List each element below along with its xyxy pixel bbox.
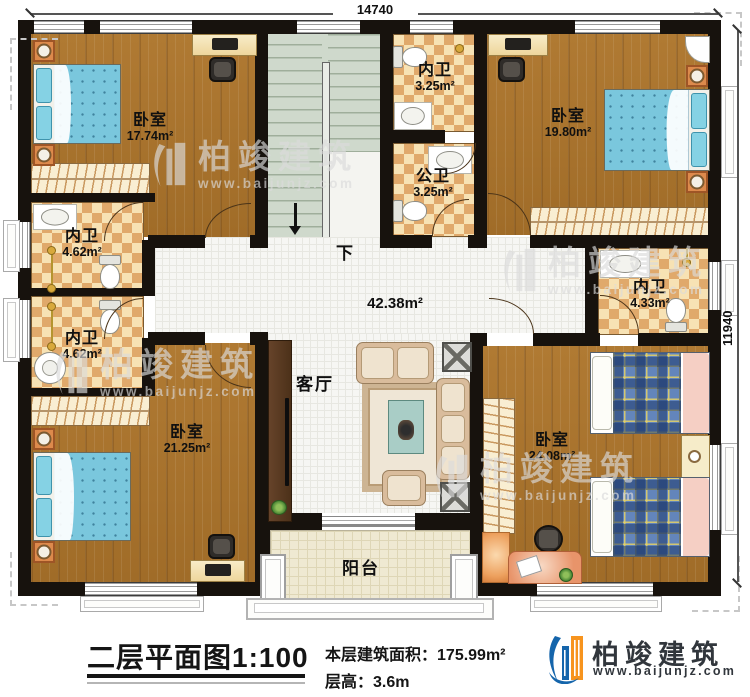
room-label-bath-top: 内卫 3.25m²	[395, 62, 475, 93]
room-label-bedroom-top-left: 卧室 17.74m²	[105, 112, 195, 143]
room-area: 3.25m²	[395, 80, 475, 94]
room-label-living: 客厅	[296, 370, 334, 395]
chair-bedroom-top-left	[209, 57, 236, 82]
computer-monitor-icon	[205, 564, 231, 576]
toilet	[393, 199, 427, 223]
wardrobe-bedroom-bottom-left	[31, 396, 150, 426]
stairs-down-label: 下	[336, 239, 353, 264]
lamp-icon	[688, 450, 701, 463]
nightstand	[33, 541, 55, 563]
sofa-cushion	[397, 347, 430, 379]
wall-bedroom1-stairs	[255, 34, 268, 237]
dimension-right: 11940	[720, 258, 735, 346]
hook-icon	[455, 44, 464, 53]
wardrobe-bedroom-top-right	[530, 207, 710, 237]
balcony-sliding-door	[322, 516, 415, 527]
stairs-direction-line	[294, 203, 297, 227]
end-table	[442, 342, 472, 372]
wall-bath-bedroom2	[474, 34, 487, 248]
floor-area-label: 本层建筑面积：	[325, 647, 437, 664]
wall-hall-north-e	[530, 235, 721, 248]
desk-bedroom-bottom-left	[190, 560, 245, 582]
wall-bath2-bottom	[31, 388, 155, 396]
wall-bedroom4-top-c	[638, 333, 708, 346]
sofa-cushion	[441, 446, 465, 475]
wall-living-balcony-b	[415, 513, 470, 530]
double-bed-bottom-left	[33, 452, 131, 541]
plan-title-name: 二层平面图	[87, 642, 232, 673]
plan-title: 二层平面图1:100	[87, 636, 309, 676]
room-area: 24.08m²	[507, 450, 597, 464]
wall-hall-north-b	[250, 235, 268, 248]
room-label-bedroom-top-right: 卧室 19.80m²	[523, 108, 613, 139]
room-name: 卧室	[523, 108, 613, 126]
window-top-1	[34, 20, 84, 34]
window-top-stairs	[297, 20, 360, 34]
floor-plan-page: 14740 11940	[0, 0, 750, 697]
double-bed-top-right	[604, 89, 710, 171]
sill-left-1	[3, 220, 20, 272]
sill-right-1	[721, 86, 738, 178]
wall-hall-north-c	[380, 235, 432, 248]
wall-hall-north-d	[468, 235, 487, 248]
room-name: 内卫	[395, 62, 475, 80]
room-area: 21.25m²	[142, 442, 232, 456]
floor-height-line: 层高：3.6m	[325, 668, 409, 692]
wall-hall-north-a	[148, 235, 205, 248]
room-name: 公卫	[393, 168, 473, 186]
wardrobe-bedroom-top-left	[31, 163, 150, 195]
room-area: 19.80m²	[523, 126, 613, 140]
computer-monitor-icon	[212, 38, 238, 50]
twin-bed-lower	[590, 477, 710, 557]
room-label-bath-left-lower: 内卫 4.62m²	[42, 330, 122, 361]
nightstand-between-beds	[681, 435, 710, 479]
wall-bedroom4-top-b	[533, 333, 600, 346]
pink-throw	[681, 478, 709, 556]
sofa-cushion	[441, 415, 465, 444]
nightstand	[33, 428, 55, 450]
floor-area-line: 本层建筑面积：175.99m²	[325, 641, 506, 665]
cabinet-bedroom-bottom-right	[482, 532, 510, 583]
brand-logo-icon	[543, 632, 587, 684]
room-name: 内卫	[610, 279, 690, 297]
nightstand	[33, 144, 55, 166]
wall-bath-top-divider	[393, 130, 445, 143]
pillow	[592, 481, 612, 553]
title-underline-thick	[87, 674, 305, 678]
room-label-balcony: 阳台	[342, 554, 380, 579]
plant-icon	[271, 500, 287, 515]
chair-bedroom-top-right	[498, 57, 525, 82]
floor-hall	[155, 237, 598, 333]
sofa-cushion	[441, 383, 465, 412]
window-top-2	[100, 20, 192, 34]
end-table	[440, 482, 470, 512]
balcony-post-left	[260, 554, 286, 604]
room-label-bath-left-upper: 内卫 4.62m²	[42, 228, 122, 259]
plaid-blanket	[613, 478, 681, 556]
plan-title-scale: 1:100	[232, 642, 309, 673]
dimension-line-top-left	[30, 13, 333, 15]
balcony-railing-inner	[254, 603, 484, 613]
room-name: 卧室	[507, 432, 597, 450]
wall-bedroom4-top-a	[470, 333, 487, 346]
plaid-blanket	[613, 353, 681, 433]
dimension-top: 14740	[337, 2, 413, 17]
stairs-direction-arrow	[289, 226, 301, 235]
armchair	[382, 470, 426, 506]
room-area: 17.74m²	[105, 130, 195, 144]
pink-throw	[681, 353, 709, 433]
dimension-line-right	[737, 30, 739, 582]
brand-website: www.baijunjz.com	[593, 664, 736, 678]
shower-head-icon	[47, 284, 56, 293]
sink	[33, 204, 77, 230]
dimension-line-top-right	[418, 13, 718, 15]
room-area: 42.38m²	[352, 296, 438, 313]
plant-icon	[559, 568, 573, 582]
room-label-bath-right: 内卫 4.33m²	[610, 279, 690, 310]
room-area: 4.62m²	[42, 246, 122, 260]
stairs-steps-right	[328, 34, 380, 152]
floor-height-value: 3.6m	[373, 674, 409, 691]
sink	[600, 250, 650, 278]
bed-headboard	[34, 65, 54, 143]
title-underline-thin	[87, 682, 305, 684]
stairs-handrail	[322, 62, 330, 239]
corner-mark-bottom-right	[692, 556, 740, 612]
sill-bottom-right	[530, 596, 662, 612]
room-name: 内卫	[42, 330, 122, 348]
shower-head-icon	[47, 302, 56, 311]
nightstand	[686, 65, 708, 87]
wall-bedroom3-top-a	[148, 332, 205, 345]
wall-bath1-top	[31, 193, 155, 202]
wall-bathright-left	[585, 248, 598, 333]
wardrobe-bedroom-bottom-right	[483, 398, 515, 534]
room-area: 4.62m²	[42, 348, 122, 362]
sill-right-3	[721, 443, 738, 535]
balcony-post-right	[450, 554, 478, 604]
sofa-three-seat	[436, 378, 470, 480]
twin-bed-upper	[590, 352, 710, 434]
sink	[394, 102, 432, 130]
window-bottom-left	[85, 582, 197, 596]
pillow	[592, 356, 612, 430]
room-area: 3.25m²	[393, 186, 473, 200]
room-name: 卧室	[142, 424, 232, 442]
room-label-bedroom-bottom-left: 卧室 21.25m²	[142, 424, 232, 455]
computer-monitor-icon	[505, 38, 531, 50]
nightstand	[33, 40, 55, 62]
hall-area-label: 42.38m²	[352, 296, 438, 313]
floor-height-label: 层高：	[325, 674, 373, 691]
desk-bedroom-top-left	[192, 34, 257, 56]
window-top-bath	[410, 20, 453, 34]
room-label-bedroom-bottom-right: 卧室 24.08m²	[507, 432, 597, 463]
coffee-table	[388, 400, 424, 454]
bed-mattress	[54, 453, 130, 540]
tv-icon	[285, 398, 289, 486]
shower-head-icon	[682, 258, 691, 267]
nightstand	[686, 171, 708, 193]
bed-headboard	[34, 453, 54, 540]
stair-well-opening	[328, 152, 380, 237]
room-label-bath-public: 公卫 3.25m²	[393, 168, 473, 199]
chair-bedroom-bottom-left	[208, 534, 235, 559]
sofa-cushion	[361, 347, 394, 379]
sill-bottom-left	[80, 596, 204, 612]
sofa-cushion	[387, 475, 421, 501]
bed-headboard	[689, 90, 709, 170]
window-bottom-right	[537, 582, 653, 596]
floor-area-value: 175.99m²	[437, 647, 506, 664]
sill-left-2	[3, 298, 20, 362]
wall-stairs-bath	[380, 34, 393, 237]
room-name: 卧室	[105, 112, 195, 130]
toilet	[98, 255, 122, 289]
room-name: 内卫	[42, 228, 122, 246]
desk-chair	[534, 525, 563, 553]
desk-bedroom-top-right	[488, 34, 548, 56]
room-area: 4.33m²	[610, 297, 690, 311]
window-top-3	[575, 20, 660, 34]
bed-mattress	[605, 90, 689, 170]
sofa-two-seat	[356, 342, 434, 384]
